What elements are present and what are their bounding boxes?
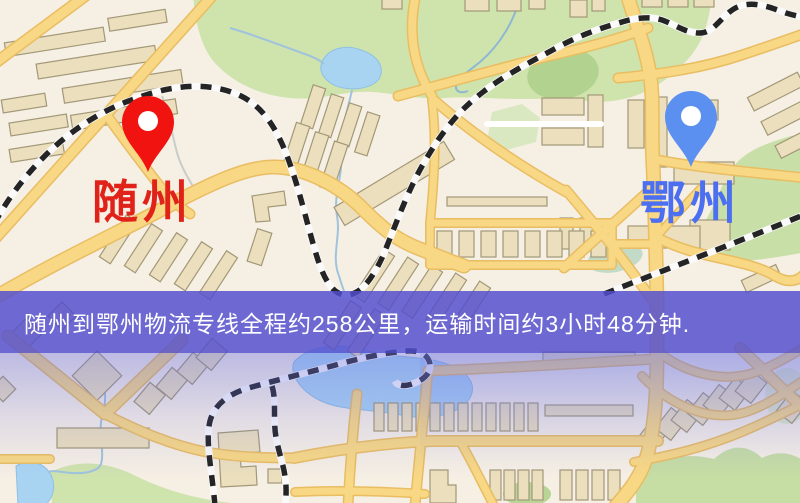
origin-pin-icon[interactable] [120,92,176,172]
destination-label: 鄂州 [640,181,740,227]
origin-pin-shape [122,96,174,172]
map-background [0,0,800,503]
route-banner-text: 随州到鄂州物流专线全程约258公里，运输时间约3小时48分钟. [24,305,690,339]
destination-pin-shape [665,91,717,167]
route-banner: 随州到鄂州物流专线全程约258公里，运输时间约3小时48分钟. [0,291,800,353]
map-canvas: 随州到鄂州物流专线全程约258公里，运输时间约3小时48分钟. 随州 鄂州 [0,0,800,503]
origin-label: 随州 [92,180,192,226]
destination-pin-hole [681,106,701,126]
destination-pin-icon[interactable] [663,87,719,167]
origin-pin-hole [138,111,158,131]
